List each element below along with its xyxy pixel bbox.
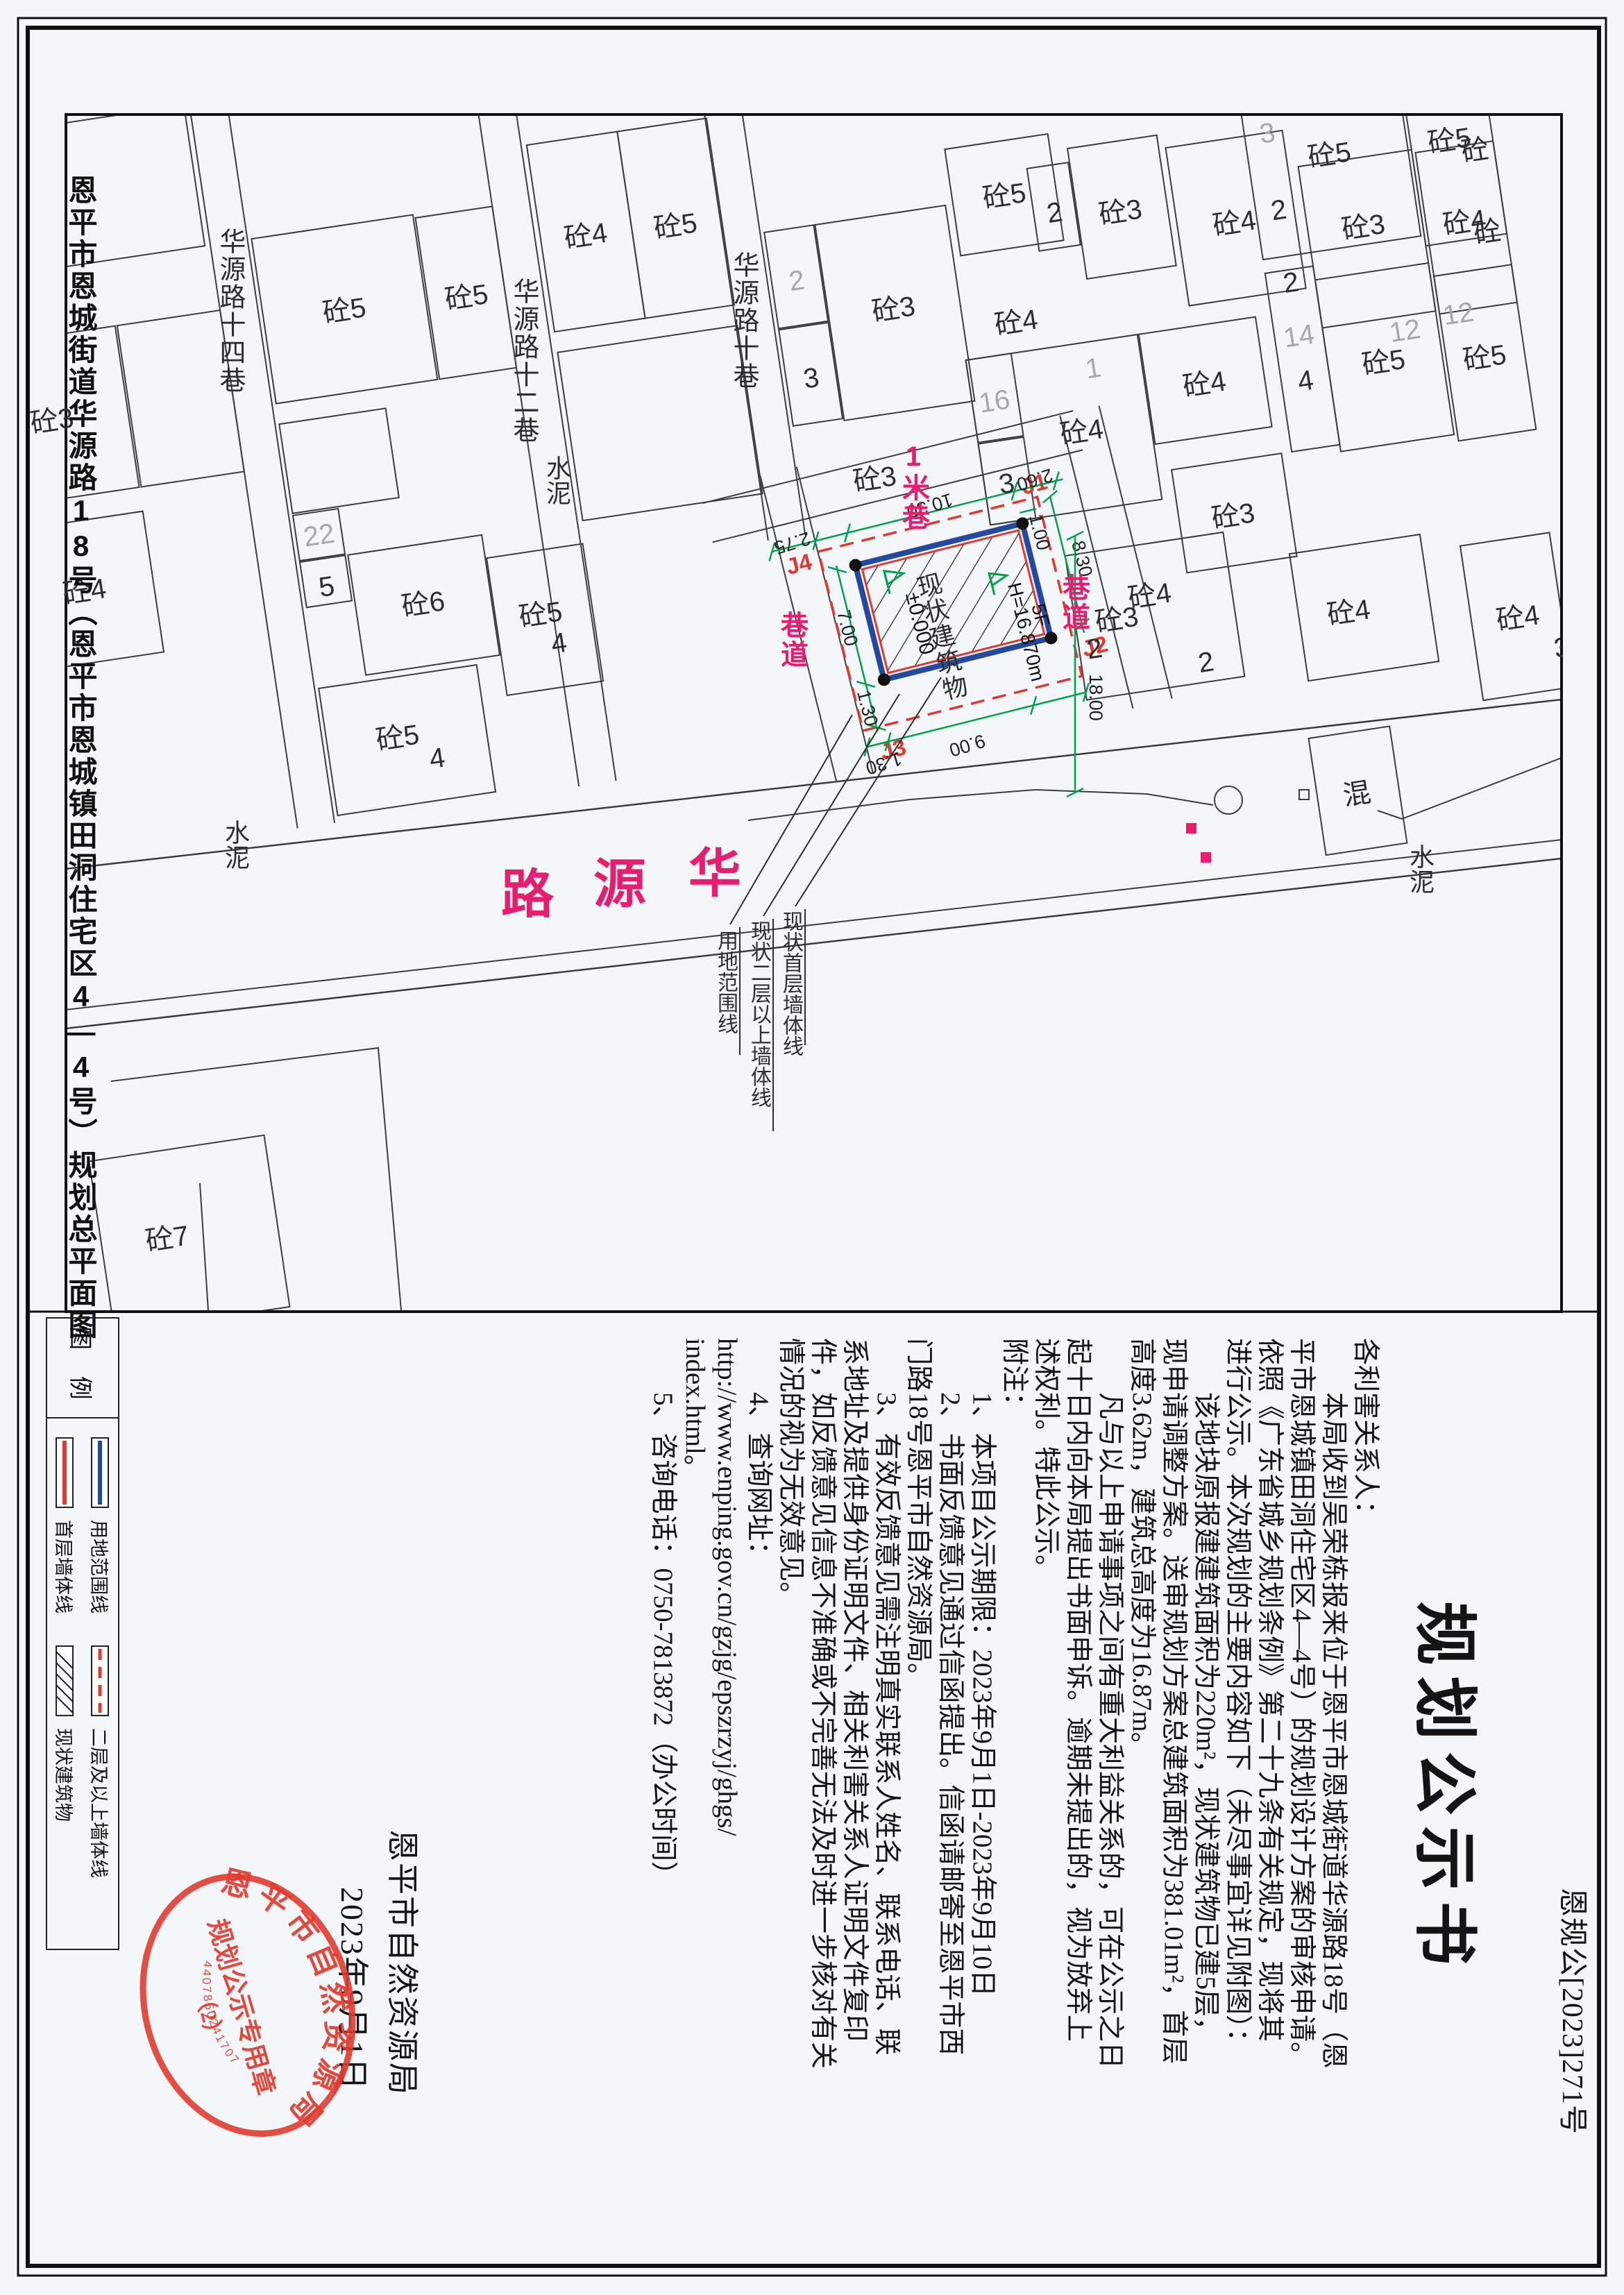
legend-sample-existing-building <box>56 1645 75 1717</box>
dim-1-30-left: 1.30 <box>853 688 882 728</box>
body-line: 述权利。特此公示。 <box>1030 1338 1062 2254</box>
alley-label-xiangdao-w: 巷道 <box>778 611 806 669</box>
block-label: 砼4 <box>1058 414 1106 450</box>
body-line: 进行公示。本次规划的主要内容如下（未尽事宜详见附图）： <box>1221 1338 1253 2254</box>
block-label: 砼4 <box>1325 594 1372 631</box>
body-line: 该地块原报建建筑面积为220m²，现状建筑物已建5层， <box>1190 1338 1221 2254</box>
block-label: 22 <box>301 518 337 552</box>
official-seal: 恩平市自然资源局 规划公示专用章 （2） 4407850241707 <box>88 1835 403 2176</box>
road-name-char: 源 <box>593 855 646 914</box>
notice-text-panel: 恩规公[2023]271号 规划公示书 各利害关系人： 本局收到吴荣栋报来位于恩… <box>28 1312 1599 2266</box>
body-line: 平市恩城镇田洞住宅区4—4号）的规划设计方案的审核申请。 <box>1285 1338 1317 2254</box>
leader-label-ground-wall: 现状首层墙体线 <box>780 911 801 1056</box>
scanned-planning-notice: { "page": { "caption": "恩平市恩城街道华源路18号（恩平… <box>0 0 1624 2295</box>
document-number: 恩规公[2023]271号 <box>1554 1888 1596 2135</box>
legend-sample-ground-wall <box>56 1437 75 1509</box>
block-label: 3 <box>802 362 822 395</box>
body-line: 门路18号恩平市自然资源局。 <box>902 1338 934 2254</box>
block-label: 2 <box>787 264 807 297</box>
dim-9-00: 9.00 <box>947 730 988 761</box>
block-label: 12 <box>1387 314 1423 348</box>
legend-label: 首层墙体线 <box>51 1520 78 1645</box>
road-name-char: 华 <box>688 845 741 904</box>
body-line: 1、本项目公示期限：2023年9月1日-2023年9月10日 <box>966 1338 998 2254</box>
block-label: 砼3 <box>1339 209 1387 246</box>
block-label: 砼5 <box>374 720 421 756</box>
surface-label-cement-1: 水泥 <box>544 455 569 505</box>
block-label: 砼5 <box>981 178 1028 214</box>
pink-square-2 <box>1201 852 1211 863</box>
block-label: 砼4 <box>1211 205 1258 242</box>
dim-2-60: 2.60 <box>1014 464 1055 495</box>
road-name-char: 路 <box>501 865 555 924</box>
legend-title: 图 例 <box>47 1319 118 1419</box>
surface-label-cement-3: 水泥 <box>1407 844 1432 894</box>
block-label: 砼3 <box>870 291 917 328</box>
body-line: 4、查询网址： <box>743 1338 775 2254</box>
legend-sample-upper-wall <box>91 1645 110 1717</box>
block-label: 4 <box>1296 365 1316 398</box>
dim-7-00: 7.00 <box>833 608 862 648</box>
block-label: 砼3 <box>1097 194 1144 230</box>
legend-label: 用地范围线 <box>87 1520 114 1645</box>
block-label: 砼5 <box>1306 137 1353 173</box>
body-line: 依照《广东省城乡规划条例》第二十九条有关规定，现将其 <box>1253 1338 1285 2254</box>
block-label: 2 <box>1269 194 1289 227</box>
block-label: 12 <box>1441 296 1476 331</box>
parcel-grid <box>0 0 1624 1333</box>
block-label: 4 <box>549 627 569 660</box>
dim-18-00: 18.00 <box>1085 674 1106 721</box>
body-line: 情况的视为无效意见。 <box>775 1338 806 2254</box>
block-label: 砼5 <box>517 596 564 633</box>
leader-label-land-boundary: 用地范围线 <box>715 930 736 1034</box>
block-label: 砼5 <box>652 208 699 244</box>
block-label: 混 <box>1341 777 1373 811</box>
map-caption: 恩平市恩城街道华源路18号（恩平市恩城镇田洞住宅区4—4号）规划总平面图 <box>60 175 102 1341</box>
body-line: 凡与以上申请事项之间有重大利益关系的，可在公示之日 <box>1094 1338 1126 2254</box>
block-label: 砼7 <box>144 1221 191 1257</box>
body-line: 起十日内向本局提出书面申诉。逾期未提出的，视为放弃上 <box>1062 1338 1094 2254</box>
body-line: 5、咨询电话：0750-7813872（办公时间） <box>647 1338 679 2254</box>
notice-body: 各利害关系人： 本局收到吴荣栋报来位于恩平市恩城街道华源路18号（恩 平市恩城镇… <box>647 1338 1381 2254</box>
block-label: 砼5 <box>1461 339 1508 376</box>
block-label: 砼5 <box>443 279 490 316</box>
block-label: 砼6 <box>400 586 447 623</box>
manhole-circle <box>1215 786 1242 814</box>
map-frame <box>66 115 1562 1312</box>
legend-box: 图 例 用地范围线 二层及以上墙体线 首层墙体线 现状建筑物 <box>46 1317 119 1950</box>
block-label: 2 <box>1281 266 1301 299</box>
block-label: 砼3 <box>851 461 898 498</box>
road-marker-square <box>1299 790 1309 799</box>
lane-label-huayuanlu-12: 华源路十二巷 <box>510 278 536 444</box>
body-line: index.html。 <box>679 1338 711 2254</box>
body-line: http://www.enping.gov.cn/gzjg/epszrzyj/g… <box>711 1338 743 2254</box>
block-label: 砼4 <box>992 304 1040 341</box>
block-label: 砼5 <box>1460 131 1507 168</box>
body-line: 系地址及提供身份证明文件、相关利害关系人证明文件复印 <box>838 1338 870 2254</box>
leader-label-upper-wall: 现状二层以上墙体线 <box>748 920 769 1108</box>
body-line: 附注： <box>998 1338 1030 2254</box>
lane-label-huayuanlu-14: 华源路十四巷 <box>217 228 243 394</box>
block-label: 3 <box>1258 117 1278 150</box>
body-line: 件，如反馈意见信息不准确或不完善无法及时进一步核对有关 <box>806 1338 838 2254</box>
block-label: 14 <box>1281 319 1317 354</box>
block-label: 砼5 <box>321 292 368 329</box>
body-line: 各利害关系人： <box>1349 1338 1381 2254</box>
block-label: 2 <box>1196 646 1216 679</box>
block-label: 16 <box>977 384 1013 419</box>
block-label: 2 <box>1044 196 1065 229</box>
legend-label: 现状建筑物 <box>51 1728 78 1902</box>
block-label: 1 <box>1083 353 1103 385</box>
block-label: 砼5 <box>1360 344 1407 381</box>
surface-label-cement-2: 水泥 <box>223 820 248 870</box>
block-label: 砼4 <box>1494 600 1541 636</box>
legend-label: 二层及以上墙体线 <box>87 1728 114 1902</box>
page-title: 规划公示书 <box>1404 1312 1496 2266</box>
body-line: 2、书面反馈意见通过信函提出。信函请邮寄至恩平市西 <box>934 1338 966 2254</box>
alley-label-xiangdao-e: 巷道 <box>1060 573 1088 632</box>
body-line: 本局收到吴荣栋报来位于恩平市恩城街道华源路18号（恩 <box>1317 1338 1349 2254</box>
body-line: 高度3.62m，建筑总高度为16.87m。 <box>1126 1338 1158 2254</box>
pink-square-1 <box>1186 823 1196 833</box>
legend-sample-land-boundary <box>91 1437 110 1509</box>
block-label: 5 <box>316 570 337 603</box>
block-label: 4 <box>428 742 448 774</box>
body-line: 现申请调整方案。送审规划方案总建筑面积为381.01m²，首层 <box>1158 1338 1190 2254</box>
road-huayuan <box>66 700 1562 1310</box>
block-label: 砼4 <box>562 218 609 255</box>
lane-label-huayuanlu-10: 华源路十巷 <box>730 251 756 390</box>
block-label: 砼3 <box>1093 602 1140 638</box>
alley-label-1m: 1米巷 <box>899 441 927 532</box>
block-label: 砼3 <box>1210 498 1257 534</box>
block-label: 砼4 <box>1181 366 1228 403</box>
body-line: 3、有效反馈意见需注明真实联系人姓名、联系电话、联 <box>870 1338 902 2254</box>
block-label: 砼4 <box>1471 213 1519 250</box>
